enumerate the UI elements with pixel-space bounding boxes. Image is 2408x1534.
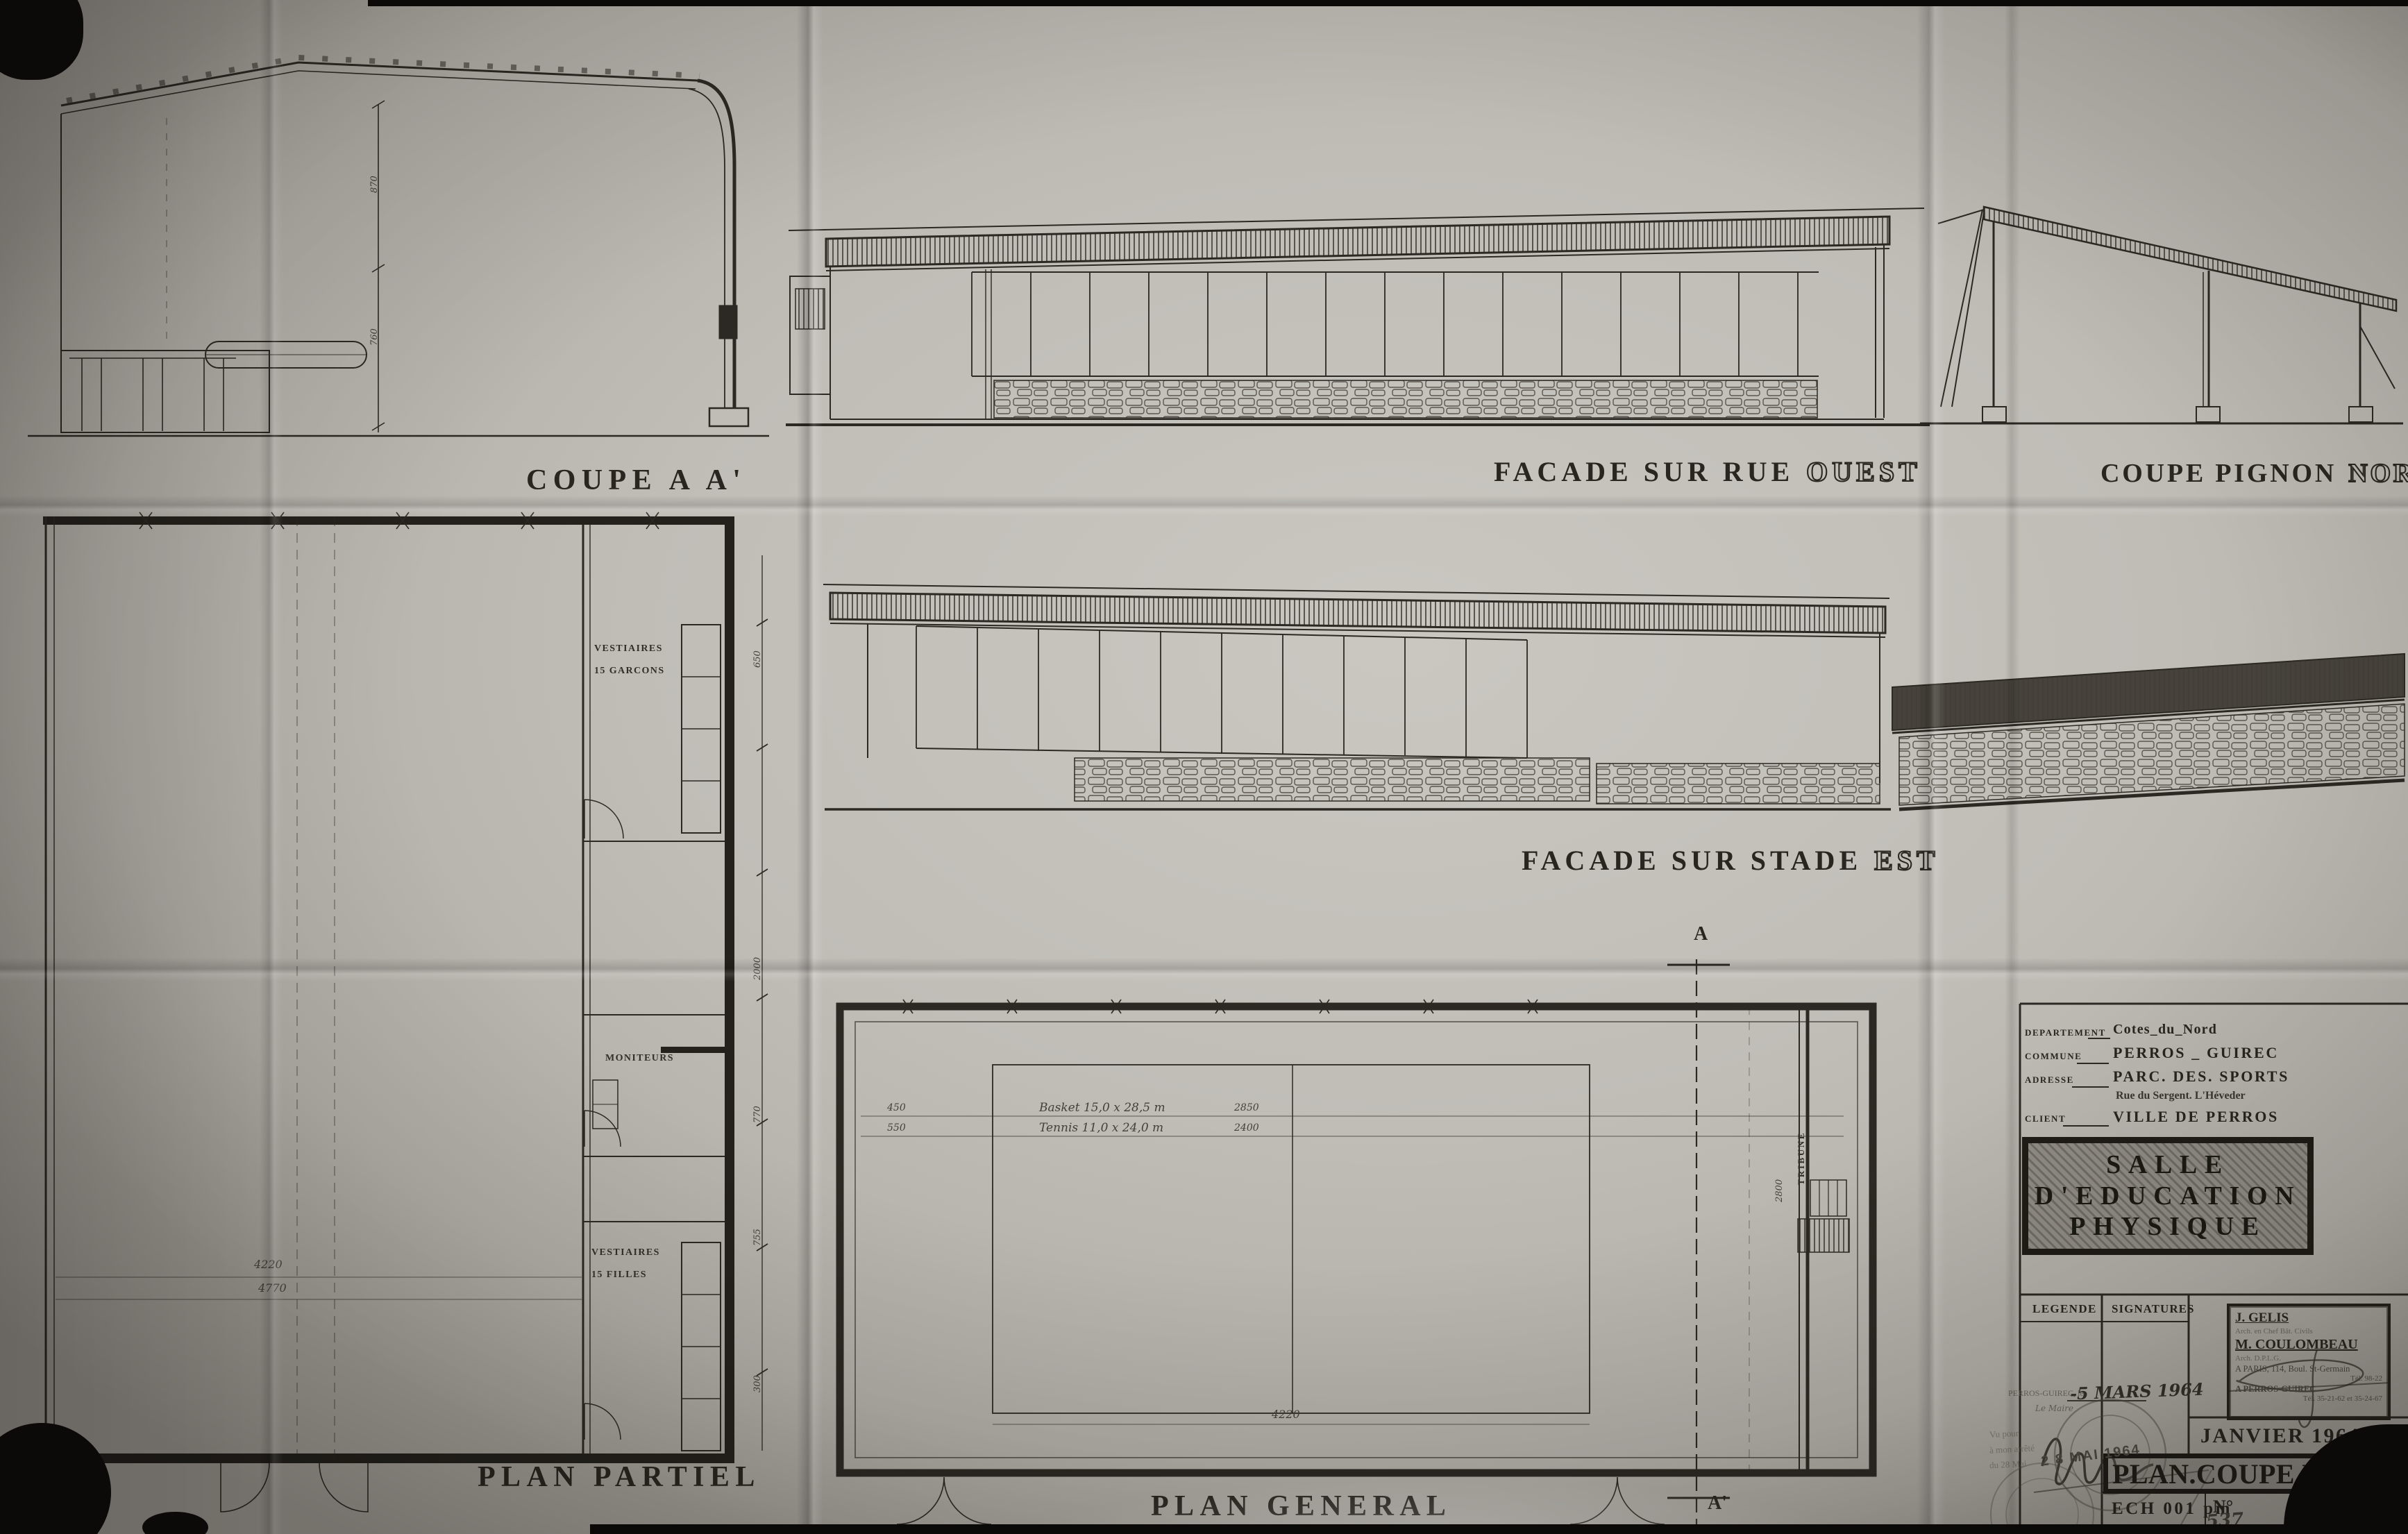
architect-address-perros: A PERROS-GUIREC — [2235, 1384, 2382, 1394]
view-label-facade-est: FACADE SUR STADEEST — [1522, 844, 1939, 877]
coupe-pignon-drawing — [1920, 207, 2403, 423]
project-title-box: SALLE D'EDUCATION PHYSIQUE — [2022, 1137, 2314, 1255]
court-label-basket: Basket 15,0 x 28,5 m — [1039, 1101, 1165, 1115]
field-value-adresse: PARC. DES. SPORTS — [2113, 1068, 2289, 1086]
view-label-coupe-pignon: COUPE PIGNONNORD — [2100, 458, 2408, 489]
architect-name-1: J. GELIS — [2235, 1310, 2382, 1326]
prefect-stamp-line: du 28 Mai — [1989, 1458, 2027, 1472]
view-label-plan-general: PLAN GENERAL — [1151, 1490, 1451, 1523]
room-label-moniteurs: MONITEURS — [605, 1054, 674, 1063]
architect-role-2: Arch. D.P.L.G. — [2235, 1354, 2382, 1363]
partiel-side-dim: 650 — [752, 650, 763, 668]
project-title-line: PHYSIQUE — [2069, 1211, 2266, 1242]
section-marker-a: A — [1694, 923, 1708, 945]
signatures-header: SIGNATURES — [2112, 1302, 2194, 1316]
coupe-dim-760: 760 — [369, 328, 380, 346]
court-dim-550: 550 — [887, 1122, 906, 1133]
tribune-dim-2800: 2800 — [1774, 1179, 1785, 1202]
coupe-dim-870: 870 — [369, 176, 380, 193]
view-label-coupe-aa: COUPE A A' — [526, 464, 746, 497]
architect-tel-paris: Tél. 98-22 — [2235, 1374, 2382, 1383]
field-value-adresse-line2: Rue du Sergent. L'Héveder — [2116, 1090, 2246, 1102]
legende-header: LEGENDE — [2032, 1302, 2097, 1316]
room-label-vestiaires-filles: VESTIAIRES 15 FILLES — [591, 1248, 660, 1280]
blueprint-sheet: COUPE A A' FACADE SUR RUEOUEST COUPE PIG… — [0, 0, 2408, 1534]
architect-name-2: M. COULOMBEAU — [2235, 1337, 2382, 1353]
project-title-line: SALLE — [2106, 1149, 2230, 1181]
field-label-adresse: ADRESSE — [2025, 1074, 2074, 1086]
court-label-tennis: Tennis 11,0 x 24,0 m — [1039, 1121, 1163, 1135]
architect-role-1: Arch. en Chef Bât. Civils — [2235, 1327, 2382, 1335]
view-label-facade-ouest: FACADE SUR RUEOUEST — [1494, 455, 1921, 488]
field-value-departement: Cotes_du_Nord — [2113, 1022, 2217, 1038]
architect-stamp-box: J. GELIS Arch. en Chef Bât. Civils M. CO… — [2227, 1304, 2391, 1420]
partiel-side-dim: 300 — [752, 1375, 763, 1392]
facade-est-drawing — [823, 584, 1891, 809]
field-label-client: CLIENT — [2025, 1113, 2066, 1124]
architect-tel-perros: Tél. 35-21-62 et 35-24-67 — [2235, 1394, 2382, 1403]
partiel-side-dim: 2000 — [752, 957, 763, 980]
partiel-dim-4220: 4220 — [254, 1258, 283, 1271]
architect-address-paris: A PARIS, 114, Boul. St-Germain — [2235, 1364, 2382, 1374]
tribune-label: TRIBUNE — [1796, 1131, 1805, 1185]
partiel-side-dim: 770 — [752, 1106, 763, 1123]
view-label-plan-partiel: PLAN PARTIEL — [478, 1460, 761, 1494]
partiel-dim-4770: 4770 — [258, 1281, 287, 1295]
field-value-commune: PERROS _ GUIREC — [2113, 1044, 2279, 1062]
prefect-stamp-line: à mon arrêté — [1989, 1442, 2035, 1456]
project-title-line: D'EDUCATION — [2035, 1181, 2301, 1212]
partiel-side-dim: 755 — [752, 1229, 763, 1246]
field-label-departement: DEPARTEMENT — [2025, 1027, 2106, 1038]
mayor-stamp-title: Le Maire — [2035, 1404, 2073, 1413]
photo-corner-artifact — [0, 1492, 56, 1534]
room-label-vestiaires-garcons: VESTIAIRES 15 GARCONS — [594, 644, 665, 676]
court-dim-2850: 2850 — [1234, 1102, 1259, 1113]
prefect-stamp-line: Vu pour — [1989, 1428, 2019, 1440]
general-dim-4220: 4220 — [1272, 1408, 1300, 1421]
field-value-client: VILLE DE PERROS — [2113, 1108, 2279, 1126]
facade-ouest-drawing — [786, 208, 1930, 425]
section-marker-a-prime: A' — [1708, 1492, 1727, 1515]
sheet-title-band: PLAN.COUPE.ELEVA — [2103, 1453, 2321, 1494]
court-dim-2400: 2400 — [1234, 1122, 1259, 1133]
coupe-aa-drawing — [28, 58, 769, 436]
field-label-commune: COMMUNE — [2025, 1051, 2082, 1062]
annex-est-drawing — [1892, 654, 2405, 809]
photo-edge-bottom — [590, 1524, 2408, 1534]
plan-general-drawing — [840, 959, 1873, 1524]
court-dim-450: 450 — [887, 1102, 906, 1113]
photo-edge-top — [368, 0, 2408, 6]
